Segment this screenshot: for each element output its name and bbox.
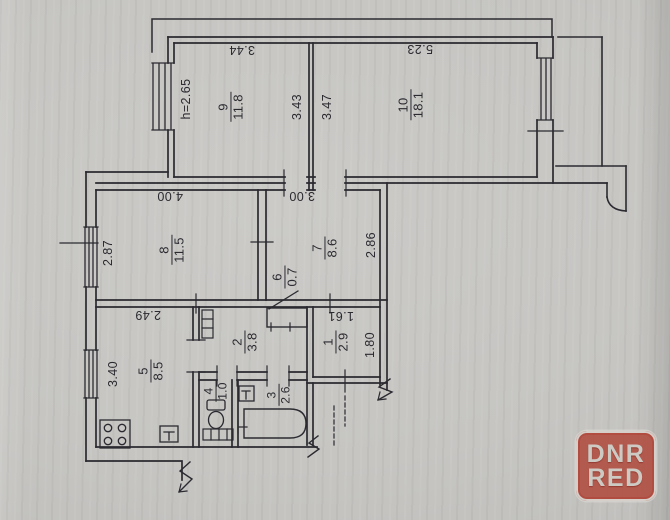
room-area: 18.1 (411, 90, 426, 121)
dim-room8-depth: 2.87 (101, 240, 115, 266)
stair-dashes (334, 396, 345, 448)
room-number: 4 (203, 388, 216, 395)
dim-room9-depth: 3.43 (290, 94, 304, 120)
room-number: 1 (321, 338, 335, 346)
dim-room10-width: 5.23 (407, 42, 433, 56)
room-number: 6 (270, 273, 284, 281)
top-balcony-outline (152, 19, 552, 52)
room-area: 2.9 (336, 331, 351, 354)
dnr-red-watermark: DNR RED (576, 431, 656, 501)
dim-room7-depth: 2.86 (364, 232, 378, 258)
dim-room9-width: 3.44 (229, 43, 255, 57)
room-number: 9 (216, 103, 230, 111)
room-area: 8.5 (151, 360, 166, 383)
closet-outline (267, 308, 307, 327)
watermark-line1: DNR (587, 442, 646, 467)
room-area: 0.7 (285, 266, 300, 289)
door-and-dimension-ticks (60, 170, 346, 392)
washbasin-icon (239, 386, 254, 401)
room-10-label: 10 18.1 (396, 90, 425, 121)
vent-shaft-icon (202, 310, 213, 338)
room-7-label: 7 8.6 (310, 237, 339, 260)
dim-room10-depth: 3.47 (320, 94, 334, 120)
room-area: 3.8 (245, 331, 260, 354)
scanned-floor-plan-page: 9 11.8 10 18.1 8 11.5 7 8.6 6 0.7 5 8.5 … (0, 0, 670, 520)
room-3-label: 3 2.6 (266, 384, 293, 406)
room-8-label: 8 11.5 (157, 235, 186, 265)
room-area: 11.8 (231, 92, 246, 122)
room-area: 2.6 (279, 384, 293, 406)
dim-ceiling-height: h=2.65 (179, 79, 193, 120)
room-6-label: 6 0.7 (270, 266, 299, 289)
room-area: 8.6 (325, 237, 340, 260)
dim-vestibule-depth: 1.80 (363, 332, 377, 358)
watermark-line2: RED (587, 466, 644, 491)
dim-kitchen-depth: 3.40 (106, 361, 120, 387)
room-area: 11.5 (172, 235, 187, 265)
room-number: 3 (266, 392, 279, 399)
dim-vestibule-width: 1.61 (328, 309, 354, 323)
balcony-outline (556, 37, 626, 211)
stove-icon (100, 420, 130, 448)
room-5-label: 5 8.5 (136, 360, 165, 383)
room-2-label: 2 3.8 (230, 331, 259, 354)
room-number: 7 (310, 244, 324, 252)
room-4-label: 4 1.0 (203, 380, 230, 402)
room-9-label: 9 11.8 (216, 92, 245, 122)
toilet-icon (207, 400, 225, 429)
room-number: 8 (157, 246, 171, 254)
room-1-label: 1 2.9 (321, 331, 350, 354)
room-number: 10 (396, 97, 410, 112)
room-number: 2 (230, 338, 244, 346)
dim-room7-width: 3.00 (289, 189, 315, 203)
room-area: 1.0 (216, 380, 230, 402)
dim-kitchen-width: 2.49 (135, 308, 161, 322)
room-number: 5 (136, 367, 150, 375)
radiator-icon (203, 429, 233, 440)
dim-room8-width: 4.00 (157, 189, 183, 203)
bathtub-icon (238, 409, 306, 438)
sink-icon (160, 426, 178, 442)
